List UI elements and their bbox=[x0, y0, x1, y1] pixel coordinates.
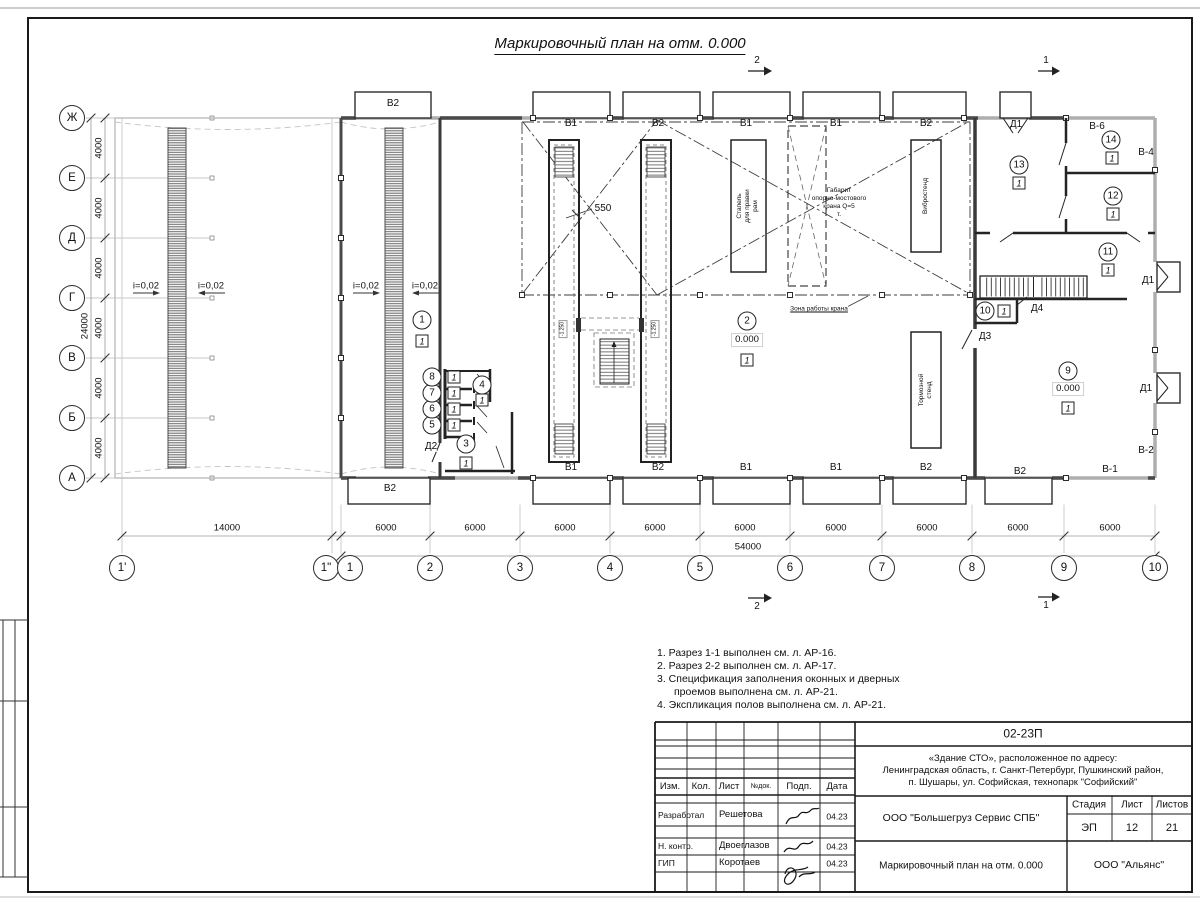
floor-type-marker: 1 bbox=[448, 387, 461, 400]
section-1-top-label: 1 bbox=[1043, 56, 1049, 66]
project-address: «Здание СТО», расположенное по адресу: Л… bbox=[858, 753, 1188, 789]
door-label-d4: Д4 bbox=[1031, 304, 1043, 314]
floor-type-marker: 1 bbox=[1102, 264, 1115, 277]
elevation-label: 0.000 bbox=[731, 333, 763, 347]
tb-role: ГИП bbox=[658, 859, 675, 868]
floor-type-marker: 1 bbox=[1106, 152, 1119, 165]
slope-label: i=0,02 bbox=[133, 281, 159, 291]
window-label-b1: В1 bbox=[565, 463, 577, 473]
tb-role: Н. контр. bbox=[658, 842, 693, 851]
door-label-d1: Д1 bbox=[1142, 276, 1154, 286]
tb-col-izm: Изм. bbox=[660, 782, 680, 792]
notes-list: 1. Разрез 1-1 выполнен см. л. АР-16. 2. … bbox=[657, 647, 900, 712]
section-1-bottom-label: 1 bbox=[1043, 601, 1049, 611]
window-label-b2: В2 bbox=[920, 463, 932, 473]
axis-row-g: Г bbox=[59, 285, 85, 311]
dim-6000: 6000 bbox=[825, 523, 846, 533]
tb-col-list: Лист bbox=[719, 782, 740, 792]
room-2-marker: 2 bbox=[738, 312, 757, 331]
axis-col-10: 10 bbox=[1142, 555, 1168, 581]
equipment bbox=[731, 126, 941, 448]
axis-col-2: 2 bbox=[417, 555, 443, 581]
floor-type-marker: 1 bbox=[448, 403, 461, 416]
tb-sheets-label: Листов bbox=[1156, 800, 1189, 811]
axis-col-1p: 1' bbox=[109, 555, 135, 581]
door-label-d2: Д2 bbox=[425, 442, 437, 452]
floor-type-marker: 1 bbox=[1062, 402, 1075, 415]
tb-name: Решетова bbox=[719, 810, 763, 820]
crane-gabarit-label: Габарит опорно-мостового крана Q=5 т. bbox=[797, 187, 881, 220]
crane-zone-label: Зона работы крана bbox=[790, 306, 848, 313]
floor-type-marker: 1 bbox=[998, 305, 1011, 318]
axis-row-b: Б bbox=[59, 405, 85, 431]
dim-6000: 6000 bbox=[644, 523, 665, 533]
dim-6000: 6000 bbox=[375, 523, 396, 533]
door-label-d1: Д1 bbox=[1010, 120, 1022, 130]
room-3-marker: 3 bbox=[457, 435, 476, 454]
tb-date: 04.23 bbox=[826, 842, 847, 851]
equip-tormoz-label: Тормозной стенд bbox=[918, 340, 934, 440]
tb-date: 04.23 bbox=[826, 859, 847, 868]
drawing-title: Маркировочный план на отм. 0.000 bbox=[494, 35, 745, 55]
room-14-marker: 14 bbox=[1102, 131, 1121, 150]
tb-col-podp: Подп. bbox=[786, 782, 811, 792]
tb-stage-value: ЭП bbox=[1081, 822, 1097, 834]
window-label-b2: В2 bbox=[920, 119, 932, 129]
axis-col-1: 1 bbox=[337, 555, 363, 581]
axis-col-8: 8 bbox=[959, 555, 985, 581]
dim-54000: 54000 bbox=[735, 542, 761, 552]
section-2-bottom-label: 2 bbox=[754, 602, 760, 612]
dim-4000: 4000 bbox=[94, 137, 104, 158]
floor-type-marker: 1 bbox=[416, 335, 429, 348]
note-line: 2. Разрез 2-2 выполнен см. л. АР-17. bbox=[657, 660, 900, 673]
slope-label: i=0,02 bbox=[412, 281, 438, 291]
dim-6000: 6000 bbox=[464, 523, 485, 533]
tb-name: Коротаев bbox=[719, 858, 760, 868]
tb-org: ООО "Альянс" bbox=[1094, 860, 1164, 872]
equip-vibro-label: Вибростенд bbox=[922, 146, 930, 246]
slope-label: i=0,02 bbox=[198, 281, 224, 291]
tb-col-data: Дата bbox=[826, 782, 847, 792]
floor-type-marker: 1 bbox=[476, 394, 489, 407]
elevation-label: 0.000 bbox=[1052, 382, 1084, 396]
window-label-b2: В2 bbox=[384, 484, 396, 494]
note-line: 3. Спецификация заполнения оконных и две… bbox=[657, 673, 900, 686]
equip-stapel-label: Стапель для правки рам bbox=[736, 146, 760, 266]
axis-row-a: А bbox=[59, 465, 85, 491]
tb-doc-title: Маркировочный план на отм. 0.000 bbox=[879, 861, 1043, 872]
dim-14000: 14000 bbox=[214, 523, 240, 533]
axis-col-4: 4 bbox=[597, 555, 623, 581]
window-label-b2d: В-2 bbox=[1138, 446, 1154, 456]
floor-type-marker: 1 bbox=[448, 419, 461, 432]
window-label-b1: В1 bbox=[740, 463, 752, 473]
room-10-marker: 10 bbox=[976, 302, 995, 321]
window-label-b2: В2 bbox=[652, 119, 664, 129]
annex-interior bbox=[975, 118, 1155, 323]
floor-type-marker: 1 bbox=[448, 371, 461, 384]
door-label-d3: Д3 bbox=[979, 332, 991, 342]
room-4-marker: 4 bbox=[473, 376, 492, 395]
tb-stage-label: Стадия bbox=[1072, 800, 1106, 811]
window-label-b1: В1 bbox=[565, 119, 577, 129]
axis-col-9: 9 bbox=[1051, 555, 1077, 581]
window-label-b1: В1 bbox=[740, 119, 752, 129]
axis-row-e: Е bbox=[59, 165, 85, 191]
window-label-b1: В1 bbox=[830, 463, 842, 473]
pit-elevation-label: -1.250 bbox=[559, 320, 568, 338]
window-label-b1: В1 bbox=[830, 119, 842, 129]
doc-number: 02-23П bbox=[1003, 727, 1042, 740]
axis-col-7: 7 bbox=[869, 555, 895, 581]
axis-col-6: 6 bbox=[777, 555, 803, 581]
dim-4000: 4000 bbox=[94, 317, 104, 338]
axis-row-zh: Ж bbox=[59, 105, 85, 131]
dim-4000: 4000 bbox=[94, 377, 104, 398]
floor-type-marker: 1 bbox=[741, 354, 754, 367]
drawing-sheet: Маркировочный план на отм. 0.000 2 1 2 1… bbox=[0, 0, 1200, 900]
dim-6000: 6000 bbox=[1007, 523, 1028, 533]
window-label-b4: В-4 bbox=[1138, 148, 1154, 158]
tb-col-ndok: №док. bbox=[751, 783, 772, 791]
dim-6000: 6000 bbox=[554, 523, 575, 533]
tb-sheets-value: 21 bbox=[1166, 822, 1178, 834]
dim-24000: 24000 bbox=[80, 313, 90, 339]
window-label-b2: В2 bbox=[652, 463, 664, 473]
axis-col-5: 5 bbox=[687, 555, 713, 581]
slope-label: i=0,02 bbox=[353, 281, 379, 291]
room-9-marker: 9 bbox=[1059, 362, 1078, 381]
tb-sheet-label: Лист bbox=[1121, 800, 1143, 811]
inspection-pits bbox=[549, 140, 671, 462]
dim-4000: 4000 bbox=[94, 197, 104, 218]
dim-6000: 6000 bbox=[1099, 523, 1120, 533]
door-label-d1: Д1 bbox=[1140, 384, 1152, 394]
room-8-marker: 8 bbox=[423, 368, 442, 387]
dim-4000: 4000 bbox=[94, 257, 104, 278]
note-line: 1. Разрез 1-1 выполнен см. л. АР-16. bbox=[657, 647, 900, 660]
room-13-marker: 13 bbox=[1010, 156, 1029, 175]
room-12-marker: 12 bbox=[1104, 187, 1123, 206]
axis-col-1pp: 1" bbox=[313, 555, 339, 581]
window-label-b2: В2 bbox=[1014, 467, 1026, 477]
tb-name: Двоеглазов bbox=[719, 841, 770, 851]
tb-role: Разработал bbox=[658, 811, 704, 820]
axis-row-v: В bbox=[59, 345, 85, 371]
dim-4000: 4000 bbox=[94, 437, 104, 458]
floor-type-marker: 1 bbox=[1013, 177, 1026, 190]
axis-row-d: Д bbox=[59, 225, 85, 251]
dim-6000: 6000 bbox=[734, 523, 755, 533]
room-1-marker: 1 bbox=[413, 311, 432, 330]
dim-550-label: 550 bbox=[595, 204, 612, 214]
axis-col-3: 3 bbox=[507, 555, 533, 581]
pit-elevation-label: -1.250 bbox=[651, 320, 660, 338]
tb-company: ООО "Большегруз Сервис СПБ" bbox=[883, 813, 1040, 825]
floor-type-marker: 1 bbox=[1107, 208, 1120, 221]
dim-6000: 6000 bbox=[916, 523, 937, 533]
tb-date: 04.23 bbox=[826, 812, 847, 821]
window-label-b2: В2 bbox=[387, 99, 399, 109]
tb-col-kol: Кол. bbox=[692, 782, 711, 792]
section-2-top-label: 2 bbox=[754, 56, 760, 66]
note-line: 4. Экспликация полов выполнена см. л. АР… bbox=[657, 699, 900, 712]
floor-type-marker: 1 bbox=[460, 457, 473, 470]
window-label-b1d: В-1 bbox=[1102, 465, 1118, 475]
room-11-marker: 11 bbox=[1099, 243, 1118, 262]
window-label-b6: В-6 bbox=[1089, 122, 1105, 132]
tb-sheet-value: 12 bbox=[1126, 822, 1138, 834]
note-line: проемов выполнена см. л. АР-21. bbox=[657, 686, 900, 699]
